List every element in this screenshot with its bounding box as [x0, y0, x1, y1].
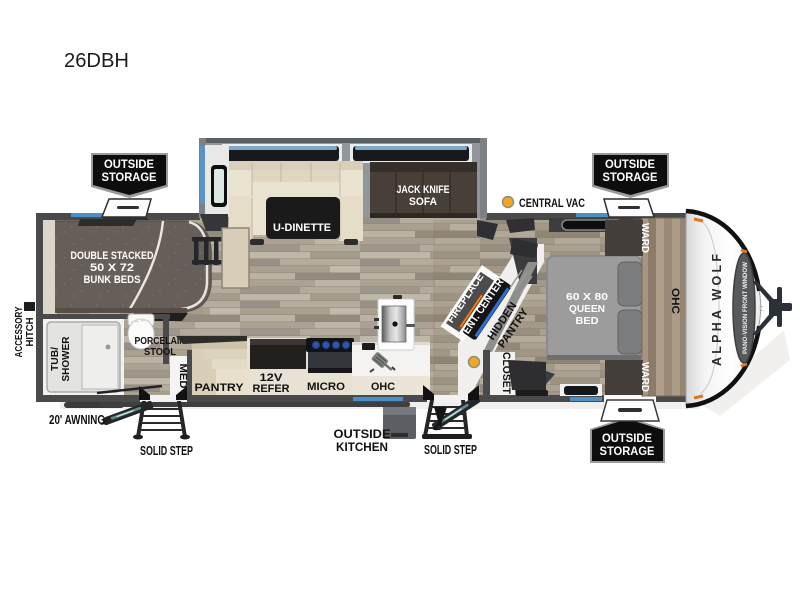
svg-text:HITCH: HITCH [25, 318, 36, 347]
svg-text:PANO-VISION FRONT WINDOW: PANO-VISION FRONT WINDOW [742, 262, 749, 354]
svg-text:20' AWNING: 20' AWNING [49, 413, 105, 427]
svg-text:60 X 80: 60 X 80 [566, 291, 608, 303]
svg-text:WARD: WARD [639, 362, 650, 392]
svg-text:BED: BED [576, 315, 599, 327]
svg-text:MED: MED [177, 364, 188, 389]
svg-text:REFER: REFER [253, 383, 290, 395]
svg-text:SOFA: SOFA [409, 196, 437, 208]
svg-text:JACK KNIFE: JACK KNIFE [397, 184, 450, 196]
svg-text:STORAGE: STORAGE [603, 172, 658, 184]
svg-text:STORAGE: STORAGE [600, 446, 655, 458]
svg-text:OUTSIDE: OUTSIDE [605, 159, 655, 171]
svg-text:QUEEN: QUEEN [569, 303, 605, 315]
svg-text:OUTSIDE: OUTSIDE [104, 159, 154, 171]
svg-text:OUTSIDE: OUTSIDE [334, 429, 391, 441]
svg-text:50 X 72: 50 X 72 [90, 262, 134, 274]
svg-text:OHC: OHC [371, 381, 395, 393]
svg-text:STORAGE: STORAGE [102, 172, 157, 184]
svg-text:26DBH: 26DBH [64, 50, 129, 72]
svg-text:OHC: OHC [669, 288, 681, 314]
svg-text:TUB/: TUB/ [50, 347, 61, 371]
svg-text:OUTSIDE: OUTSIDE [602, 433, 652, 445]
svg-text:ALPHA WOLF: ALPHA WOLF [710, 250, 724, 366]
svg-text:DOUBLE STACKED: DOUBLE STACKED [71, 250, 154, 262]
svg-text:ACCESSORY: ACCESSORY [14, 306, 25, 357]
svg-text:MICRO: MICRO [307, 381, 345, 393]
svg-text:SOLID STEP: SOLID STEP [140, 444, 193, 458]
svg-text:CENTRAL VAC: CENTRAL VAC [519, 196, 585, 210]
svg-text:BUNK BEDS: BUNK BEDS [84, 274, 141, 286]
svg-text:STOOL: STOOL [144, 346, 177, 358]
svg-text:PANTRY: PANTRY [195, 382, 245, 394]
svg-text:SHOWER: SHOWER [61, 336, 72, 382]
svg-text:SOLID STEP: SOLID STEP [424, 443, 477, 457]
svg-text:WARD: WARD [639, 223, 650, 253]
svg-text:KITCHEN: KITCHEN [336, 442, 388, 454]
svg-text:U-DINETTE: U-DINETTE [273, 222, 331, 234]
